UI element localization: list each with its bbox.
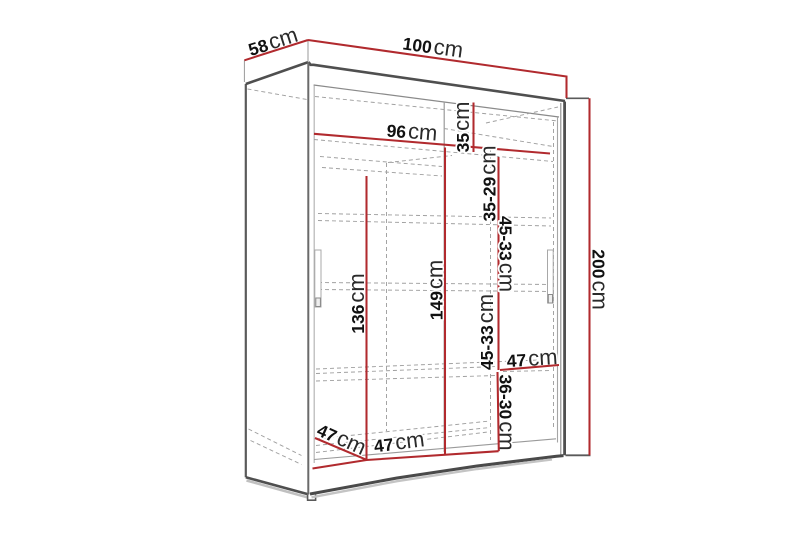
svg-text:35-29cm: 35-29cm (476, 145, 501, 221)
svg-text:45-33cm: 45-33cm (495, 216, 520, 292)
svg-text:136cm: 136cm (344, 273, 369, 334)
svg-text:149cm: 149cm (423, 260, 448, 321)
svg-text:200cm: 200cm (588, 249, 613, 310)
svg-text:45-33cm: 45-33cm (473, 294, 498, 370)
svg-text:35cm: 35cm (449, 102, 474, 153)
